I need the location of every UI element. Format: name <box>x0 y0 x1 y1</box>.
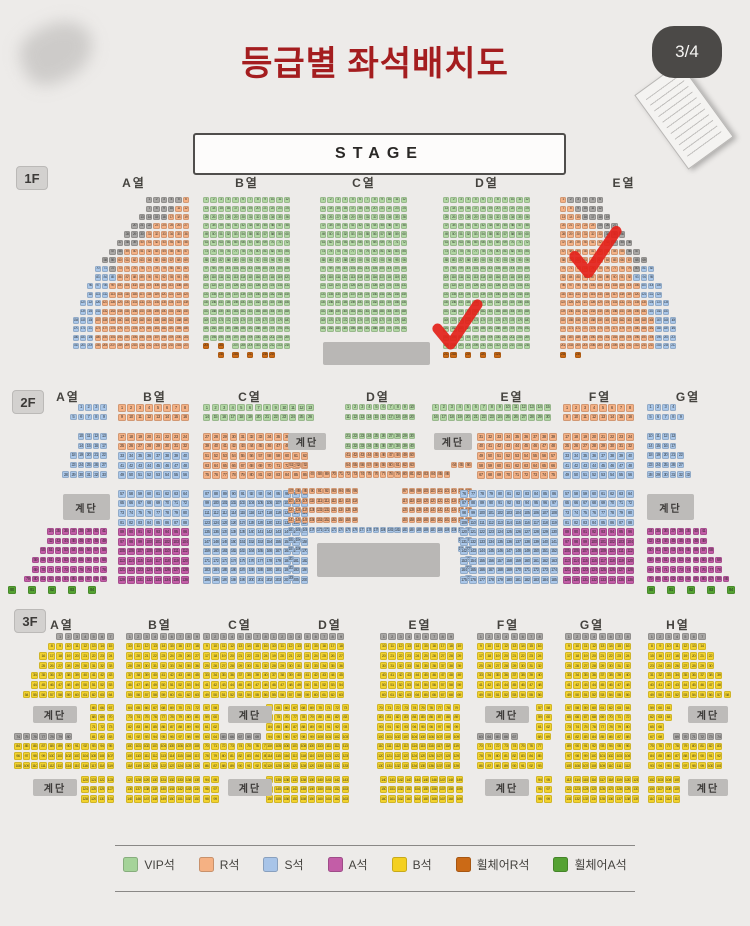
seat: 152 <box>333 786 340 793</box>
seat: 110 <box>648 795 655 802</box>
seat: 95 <box>211 776 218 783</box>
seat: 50 <box>485 691 492 698</box>
seat: 119 <box>453 743 460 750</box>
seat: 114 <box>65 762 72 769</box>
seat: 87 <box>291 723 298 730</box>
seat: 157 <box>439 786 446 793</box>
seat: 30 <box>287 662 294 669</box>
seat: 58 <box>151 691 158 698</box>
seat: 90 <box>316 723 323 730</box>
seat: 60 <box>73 691 80 698</box>
seat: 31 <box>615 662 622 669</box>
seat: 19 <box>220 652 227 659</box>
seat: 8 <box>648 643 655 650</box>
seat: 62 <box>211 723 218 730</box>
seat: 54 <box>690 691 697 698</box>
seat: 75 <box>143 714 150 721</box>
seat: 98 <box>300 733 307 740</box>
seat: 114 <box>168 752 175 759</box>
seat: 38 <box>245 672 252 679</box>
seat: 25 <box>39 662 46 669</box>
seat: 49 <box>203 691 210 698</box>
stairs-box: 계단 <box>228 779 272 796</box>
seat: 117 <box>599 776 606 783</box>
stairs-box: 계단 <box>688 779 728 796</box>
seat: 87 <box>39 743 46 750</box>
seat: 127 <box>436 752 443 759</box>
seat: 65 <box>274 704 281 711</box>
seat: 28 <box>590 662 597 669</box>
seat: 100 <box>316 733 323 740</box>
seat: 23 <box>405 652 412 659</box>
seat: 60 <box>312 691 319 698</box>
seat: 84 <box>411 714 418 721</box>
seat: 28 <box>690 662 697 669</box>
seat: 37 <box>237 672 244 679</box>
seat: 150 <box>168 795 175 802</box>
seat: 129 <box>90 795 97 802</box>
seat: 30 <box>707 662 714 669</box>
seat: 51 <box>220 691 227 698</box>
seat: 136 <box>427 762 434 769</box>
seat: 29 <box>456 652 463 659</box>
seat: 65 <box>565 714 572 721</box>
seat: 11 <box>73 643 80 650</box>
seat: 57 <box>715 691 722 698</box>
seat: 44 <box>185 672 192 679</box>
seat: 119 <box>308 752 315 759</box>
seat: 155 <box>422 786 429 793</box>
legend-item-S석: S석 <box>263 856 303 873</box>
seat: 102 <box>394 733 401 740</box>
seat: 109 <box>673 786 680 793</box>
seat: 113 <box>342 743 349 750</box>
seat: 89 <box>690 752 697 759</box>
seat: 110 <box>377 743 384 750</box>
seat: 22 <box>245 652 252 659</box>
seat: 81 <box>698 743 705 750</box>
seat: 114 <box>573 776 580 783</box>
seat: 55 <box>31 691 38 698</box>
seat: 126 <box>98 786 105 793</box>
seat: 96 <box>203 786 210 793</box>
seat: 82 <box>126 723 133 730</box>
seat: 97 <box>176 733 183 740</box>
seat: 44 <box>329 672 336 679</box>
legend-item-휠체어R석: 휠체어R석 <box>456 856 530 873</box>
seat: 12 <box>590 643 597 650</box>
seat: 10 <box>126 643 133 650</box>
seat: 94 <box>266 733 273 740</box>
seat-block-3F-F: 1234567891011121314151617181920212223242… <box>477 633 544 701</box>
seat: 12 <box>682 643 689 650</box>
seat: 3 <box>494 633 501 640</box>
seat: 39 <box>715 672 722 679</box>
seat: 7 <box>430 633 437 640</box>
seat: 70 <box>607 714 614 721</box>
seat: 149 <box>456 776 463 783</box>
seat: 55 <box>527 691 534 698</box>
seat: 40 <box>624 672 631 679</box>
seat: 41 <box>90 672 97 679</box>
seat: 126 <box>427 752 434 759</box>
seat: 53 <box>405 681 412 688</box>
seat: 112 <box>624 762 631 769</box>
seat: 65 <box>494 733 501 740</box>
seat: 50 <box>656 691 663 698</box>
section-label-3F-B열: B열 <box>148 616 172 633</box>
seat: 54 <box>23 691 30 698</box>
seat: 19 <box>270 652 277 659</box>
seat: 166 <box>430 795 437 802</box>
seat: 67 <box>439 691 446 698</box>
seat: 132 <box>168 776 175 783</box>
seat: 65 <box>422 691 429 698</box>
seat: 18 <box>211 652 218 659</box>
seat: 158 <box>447 786 454 793</box>
seat: 94 <box>411 723 418 730</box>
seat: 78 <box>203 752 210 759</box>
seat: 45 <box>599 681 606 688</box>
seat: 99 <box>453 723 460 730</box>
seat: 64 <box>624 704 631 711</box>
seat: 118 <box>300 752 307 759</box>
seat: 62 <box>544 723 551 730</box>
legend-item-B석: B석 <box>392 856 432 873</box>
seat: 12 <box>81 643 88 650</box>
seat: 23 <box>160 652 167 659</box>
seat: 73 <box>707 733 714 740</box>
seat: 146 <box>430 776 437 783</box>
seat: 107 <box>582 762 589 769</box>
seat: 62 <box>648 714 655 721</box>
seat: 151 <box>388 786 395 793</box>
seat: 22 <box>151 652 158 659</box>
seat: 97 <box>211 786 218 793</box>
seat: 52 <box>176 681 183 688</box>
seat: 104 <box>160 743 167 750</box>
seat: 104 <box>624 752 631 759</box>
seat: 7 <box>527 633 534 640</box>
seat: 120 <box>316 752 323 759</box>
seat: 125 <box>185 762 192 769</box>
seat: 60 <box>211 714 218 721</box>
seat: 49 <box>565 691 572 698</box>
seat: 57 <box>203 704 210 711</box>
seat: 8 <box>439 633 446 640</box>
seat: 113 <box>673 795 680 802</box>
seat: 16 <box>624 643 631 650</box>
seat: 63 <box>203 733 210 740</box>
seat: 47 <box>134 681 141 688</box>
seat: 90 <box>193 723 200 730</box>
seat: 81 <box>228 752 235 759</box>
seat: 88 <box>48 743 55 750</box>
seat: 77 <box>436 704 443 711</box>
seat: 36 <box>590 672 597 679</box>
seat: 10 <box>485 643 492 650</box>
seat: 25 <box>565 662 572 669</box>
seat: 59 <box>203 714 210 721</box>
seat: 120 <box>377 752 384 759</box>
seat: 111 <box>39 762 46 769</box>
seat-block-3F-F: 6364656667686970717273747576777879808182… <box>477 733 553 772</box>
seat: 19 <box>682 652 689 659</box>
seat: 31 <box>527 662 534 669</box>
seat: 96 <box>283 733 290 740</box>
seat: 41 <box>656 681 663 688</box>
seat: 56 <box>707 691 714 698</box>
seat: 37 <box>56 672 63 679</box>
seat: 89 <box>308 723 315 730</box>
seat: 129 <box>143 776 150 783</box>
seat: 52 <box>502 691 509 698</box>
seat: 64 <box>107 691 114 698</box>
seat: 21 <box>599 652 606 659</box>
seat: 62 <box>397 691 404 698</box>
seat: 29 <box>237 662 244 669</box>
seat: 8 <box>262 633 269 640</box>
seat-block-3F-F: 949596979899 <box>536 776 553 805</box>
seat: 117 <box>436 743 443 750</box>
seat: 66 <box>228 733 235 740</box>
seat: 26 <box>48 662 55 669</box>
seat: 41 <box>477 681 484 688</box>
seat: 33 <box>203 672 210 679</box>
seat: 13 <box>151 643 158 650</box>
seat: 51 <box>168 681 175 688</box>
seat: 129 <box>453 752 460 759</box>
seat: 157 <box>291 795 298 802</box>
seat: 42 <box>211 681 218 688</box>
seat: 103 <box>151 743 158 750</box>
seat: 7 <box>615 633 622 640</box>
seat: 88 <box>300 723 307 730</box>
seat: 95 <box>615 743 622 750</box>
seat: 73 <box>502 743 509 750</box>
seat: 12 <box>228 643 235 650</box>
seat: 24 <box>656 662 663 669</box>
seat: 85 <box>599 733 606 740</box>
seat: 15 <box>253 643 260 650</box>
seat: 114 <box>411 743 418 750</box>
seat: 91 <box>73 743 80 750</box>
seat: 80 <box>377 714 384 721</box>
seat: 32 <box>536 662 543 669</box>
seat: 97 <box>436 723 443 730</box>
seat: 13 <box>90 643 97 650</box>
seat: 40 <box>81 672 88 679</box>
seat-block-3F-A: 7475767778798081828384858687888990919293… <box>14 733 115 772</box>
seat: 75 <box>519 743 526 750</box>
seat: 74 <box>573 723 580 730</box>
seat: 85 <box>656 752 663 759</box>
seat: 74 <box>411 704 418 711</box>
seat: 66 <box>573 714 580 721</box>
seat: 52 <box>397 681 404 688</box>
seat: 93 <box>143 733 150 740</box>
seat: 4 <box>295 633 302 640</box>
seat: 51 <box>90 681 97 688</box>
seat: 122 <box>333 752 340 759</box>
seat: 27 <box>193 652 200 659</box>
seat: 61 <box>536 723 543 730</box>
seat: 46 <box>698 681 705 688</box>
seat: 135 <box>193 776 200 783</box>
seat: 56 <box>278 691 285 698</box>
seat: 32 <box>624 662 631 669</box>
seat: 57 <box>439 681 446 688</box>
seat: 100 <box>48 752 55 759</box>
seat: 92 <box>394 723 401 730</box>
seat: 95 <box>544 776 551 783</box>
seat: 80 <box>690 743 697 750</box>
seat: 161 <box>325 795 332 802</box>
seat: 52 <box>320 681 327 688</box>
seat: 123 <box>168 762 175 769</box>
seat: 65 <box>134 704 141 711</box>
seat: 32 <box>262 662 269 669</box>
seat: 6 <box>690 633 697 640</box>
seat: 40 <box>536 672 543 679</box>
seat: 60 <box>380 691 387 698</box>
seat: 138 <box>143 786 150 793</box>
seat: 101 <box>134 743 141 750</box>
seat: 31 <box>151 662 158 669</box>
seat: 3 <box>582 633 589 640</box>
seat: 21 <box>81 652 88 659</box>
seat: 20 <box>690 652 697 659</box>
seat: 103 <box>342 733 349 740</box>
seat: 26 <box>329 652 336 659</box>
seat: 14 <box>607 643 614 650</box>
seat: 52 <box>228 691 235 698</box>
seat: 112 <box>48 762 55 769</box>
seat: 146 <box>283 786 290 793</box>
seat: 68 <box>160 704 167 711</box>
seat: 104 <box>411 733 418 740</box>
seat: 42 <box>312 672 319 679</box>
seat: 125 <box>274 762 281 769</box>
seat: 51 <box>582 691 589 698</box>
seat: 99 <box>544 795 551 802</box>
seat: 18 <box>573 652 580 659</box>
seat: 68 <box>90 714 97 721</box>
seat: 15 <box>527 643 534 650</box>
seat: 71 <box>690 733 697 740</box>
seat: 45 <box>237 681 244 688</box>
seat: 60 <box>168 691 175 698</box>
seat-block-3F-D: 6465666768697071727374757677787980818283… <box>266 704 350 772</box>
seat: 27 <box>439 652 446 659</box>
seat: 33 <box>107 662 114 669</box>
seat: 90 <box>511 762 518 769</box>
seat: 74 <box>14 733 21 740</box>
seat: 43 <box>176 672 183 679</box>
seat: 24 <box>107 652 114 659</box>
seat: 1 <box>203 633 210 640</box>
legend-swatch <box>328 857 343 872</box>
seat: 26 <box>485 662 492 669</box>
seat: 59 <box>160 691 167 698</box>
seat: 17 <box>203 652 210 659</box>
seat: 56 <box>39 691 46 698</box>
seat: 140 <box>380 776 387 783</box>
seat: 2 <box>134 633 141 640</box>
seat: 27 <box>494 662 501 669</box>
seat: 111 <box>656 795 663 802</box>
seat: 163 <box>405 795 412 802</box>
seat: 10 <box>380 643 387 650</box>
seat: 128 <box>300 762 307 769</box>
seat: 88 <box>494 762 501 769</box>
seat: 60 <box>656 704 663 711</box>
seat: 5 <box>682 633 689 640</box>
seat: 122 <box>98 776 105 783</box>
seat: 68 <box>536 733 543 740</box>
seat: 59 <box>582 704 589 711</box>
legend-label: R석 <box>220 856 240 873</box>
seat: 14 <box>245 643 252 650</box>
seat: 131 <box>385 762 392 769</box>
seat: 95 <box>419 723 426 730</box>
seat: 35 <box>494 672 501 679</box>
seat: 77 <box>536 743 543 750</box>
seat: 67 <box>237 733 244 740</box>
seat: 132 <box>333 762 340 769</box>
seat: 83 <box>582 733 589 740</box>
seat: 69 <box>673 733 680 740</box>
seat: 75 <box>23 733 30 740</box>
seat: 100 <box>707 762 714 769</box>
seat: 34 <box>176 662 183 669</box>
seat: 121 <box>90 776 97 783</box>
legend-item-VIP석: VIP석 <box>123 856 174 873</box>
seat: 113 <box>160 752 167 759</box>
seat: 58 <box>447 681 454 688</box>
seat-block-3F-A: 1234567891011121314151617181920212223242… <box>23 633 115 701</box>
seat: 43 <box>673 681 680 688</box>
seat: 62 <box>607 704 614 711</box>
seat: 79 <box>176 714 183 721</box>
seat: 105 <box>90 752 97 759</box>
seat: 94 <box>607 743 614 750</box>
seat: 161 <box>388 795 395 802</box>
seat: 93 <box>342 723 349 730</box>
seat: 96 <box>624 743 631 750</box>
seat: 98 <box>690 762 697 769</box>
seat: 108 <box>14 762 21 769</box>
seat: 122 <box>565 786 572 793</box>
seat: 81 <box>565 733 572 740</box>
legend-swatch <box>553 857 568 872</box>
seat: 26 <box>430 652 437 659</box>
seat: 77 <box>39 733 46 740</box>
seat: 105 <box>565 762 572 769</box>
seat: 106 <box>427 733 434 740</box>
seat: 115 <box>274 752 281 759</box>
seat: 10 <box>65 643 72 650</box>
seat: 50 <box>573 691 580 698</box>
seat-block-3F-B: 1234567891011121314151617181920212223242… <box>126 633 202 701</box>
seat: 64 <box>126 704 133 711</box>
seat-block-3F-B: 1271281291301311321331341351361371381391… <box>126 776 202 805</box>
seat: 58 <box>295 691 302 698</box>
seat: 47 <box>527 681 534 688</box>
seat: 77 <box>291 714 298 721</box>
seat: 1 <box>565 633 572 640</box>
seat-block-3F-E: 1401411421431441451461471481491501511521… <box>380 776 464 805</box>
